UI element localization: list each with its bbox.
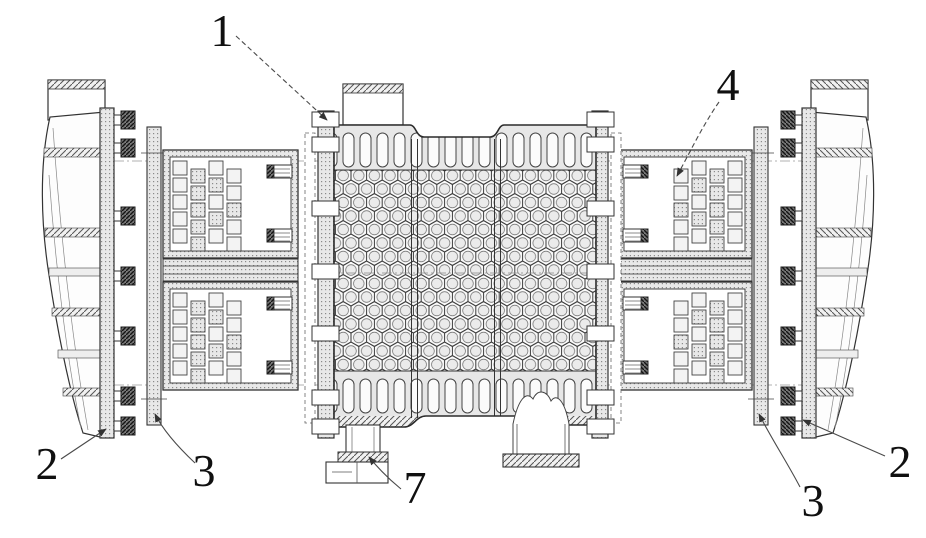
left-panel-assembly — [141, 127, 298, 425]
patent-figure: 1 4 2 3 7 3 2 — [0, 0, 926, 538]
callout-7-label: 7 — [404, 462, 427, 513]
callout-3-right-label: 3 — [802, 475, 825, 526]
grate-interior — [310, 125, 620, 427]
callout-3-left-label: 3 — [193, 445, 216, 496]
right-panel-assembly — [617, 127, 774, 425]
callout-1-leader — [236, 36, 327, 120]
left-side-liner — [42, 80, 135, 438]
callout-2-right-label: 2 — [889, 436, 912, 487]
callout-2-left-label: 2 — [36, 438, 59, 489]
callout-4-label: 4 — [717, 59, 740, 110]
center-grate-module — [305, 84, 621, 483]
top-slot-band — [334, 125, 596, 170]
callout-1-label: 1 — [211, 5, 234, 56]
right-side-liner — [781, 80, 874, 438]
grate-top-boss — [343, 84, 403, 125]
technical-drawing-canvas: 1 4 2 3 7 3 2 — [0, 0, 926, 538]
